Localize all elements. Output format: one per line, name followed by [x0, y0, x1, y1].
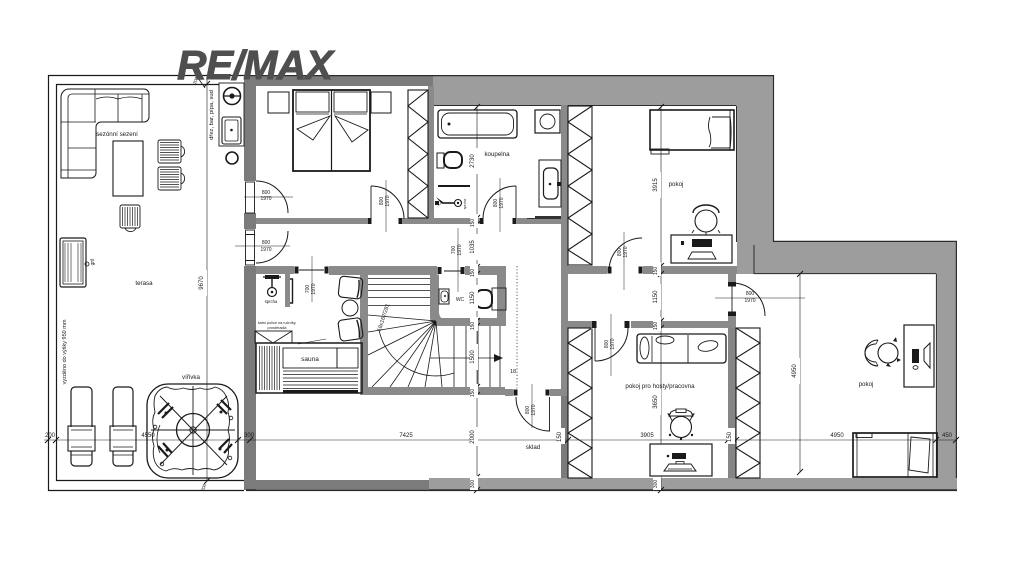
svg-text:vyzděno do výšky 950 mm: vyzděno do výšky 950 mm	[62, 319, 68, 384]
svg-text:4550: 4550	[141, 433, 155, 439]
svg-text:450: 450	[942, 433, 953, 439]
svg-text:150: 150	[470, 269, 476, 278]
svg-text:2730: 2730	[470, 154, 476, 168]
svg-text:18: 18	[510, 369, 516, 375]
svg-text:1150: 1150	[653, 290, 659, 304]
svg-text:sprcha: sprcha	[463, 199, 467, 210]
svg-text:1035: 1035	[470, 240, 476, 254]
svg-text:7425: 7425	[399, 433, 413, 439]
svg-text:800: 800	[262, 240, 271, 246]
svg-text:1970: 1970	[610, 338, 616, 349]
svg-text:1970: 1970	[457, 244, 463, 255]
svg-text:pokoj: pokoj	[859, 381, 874, 388]
svg-text:koupelna: koupelna	[484, 151, 510, 158]
svg-text:150: 150	[470, 389, 476, 398]
svg-text:šatní police na ručníky,: šatní police na ručníky,	[258, 321, 297, 325]
svg-text:1970: 1970	[385, 195, 391, 206]
svg-text:1970: 1970	[623, 246, 629, 257]
svg-text:sauna: sauna	[301, 356, 319, 363]
svg-text:vířivka: vířivka	[182, 374, 200, 381]
svg-text:RE/MAX: RE/MAX	[177, 42, 336, 88]
svg-text:prostěradla: prostěradla	[268, 326, 288, 330]
svg-text:sklad: sklad	[526, 444, 541, 451]
svg-text:1970: 1970	[260, 196, 271, 202]
svg-text:150: 150	[557, 431, 563, 442]
svg-text:150: 150	[470, 322, 476, 331]
svg-text:150: 150	[653, 322, 659, 331]
svg-text:gril: gril	[90, 259, 96, 266]
svg-text:3905: 3905	[640, 433, 654, 439]
svg-text:150: 150	[727, 431, 733, 442]
svg-text:1970: 1970	[744, 298, 755, 304]
svg-text:3915: 3915	[653, 178, 659, 192]
svg-text:2000: 2000	[470, 430, 476, 444]
svg-text:1150: 1150	[470, 291, 476, 305]
svg-text:300: 300	[244, 433, 255, 439]
svg-text:300: 300	[653, 480, 659, 489]
svg-text:1970: 1970	[531, 404, 537, 415]
svg-text:terasa: terasa	[135, 280, 153, 287]
svg-text:sezónní sezení: sezónní sezení	[96, 131, 138, 138]
svg-text:pokoj: pokoj	[669, 181, 684, 188]
svg-text:sprcha: sprcha	[265, 299, 278, 304]
svg-text:1970: 1970	[311, 283, 317, 294]
svg-text:1970: 1970	[260, 247, 271, 253]
svg-text:WC: WC	[456, 297, 465, 303]
svg-text:1500: 1500	[470, 350, 476, 364]
svg-text:dřez, bar, pípa, sud: dřez, bar, pípa, sud	[209, 90, 215, 140]
svg-text:200: 200	[45, 433, 56, 439]
svg-text:150: 150	[470, 219, 476, 228]
svg-text:pokoj pro hosty/pracovna: pokoj pro hosty/pracovna	[625, 383, 695, 390]
svg-text:3650: 3650	[653, 395, 659, 409]
svg-text:300: 300	[470, 480, 476, 489]
svg-text:4950: 4950	[792, 364, 798, 378]
svg-text:150: 150	[653, 267, 659, 276]
svg-text:1970: 1970	[499, 197, 505, 208]
svg-text:800: 800	[746, 291, 755, 297]
svg-text:9670: 9670	[199, 276, 205, 290]
svg-text:4950: 4950	[830, 433, 844, 439]
